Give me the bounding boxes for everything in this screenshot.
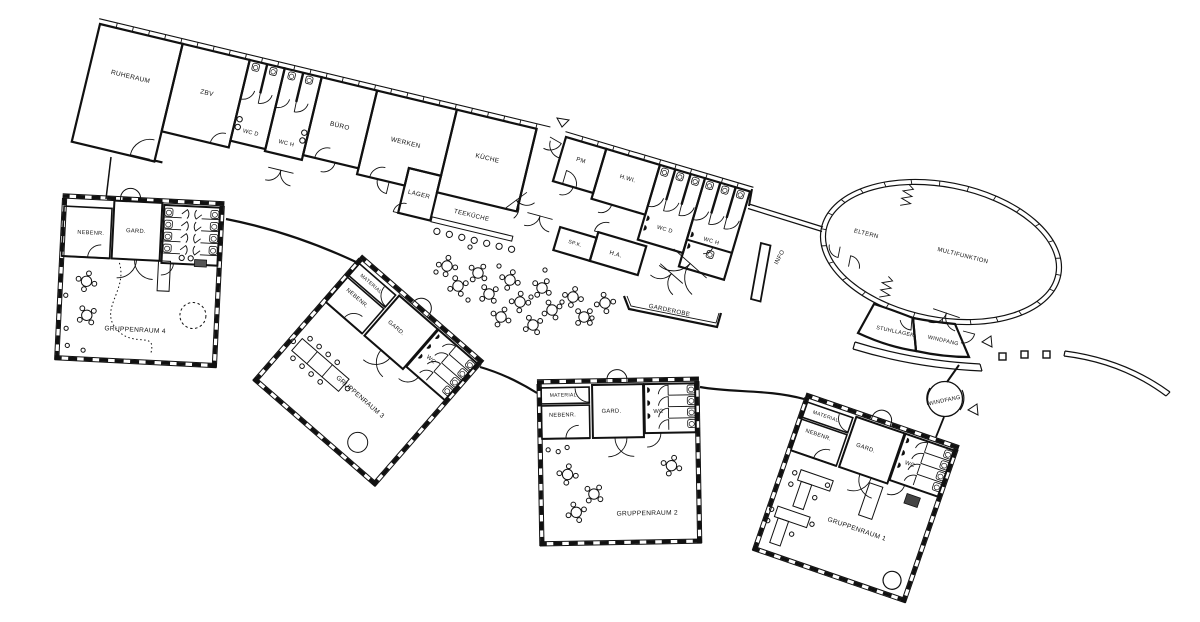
svg-text:GARD.: GARD. xyxy=(126,228,146,235)
svg-text:GARD.: GARD. xyxy=(602,409,622,415)
svg-text:NEBENR.: NEBENR. xyxy=(549,412,576,418)
svg-text:WC: WC xyxy=(653,409,663,415)
svg-text:MATERIAL: MATERIAL xyxy=(550,392,577,398)
svg-text:GRUPPENRAUM 2: GRUPPENRAUM 2 xyxy=(617,510,679,518)
